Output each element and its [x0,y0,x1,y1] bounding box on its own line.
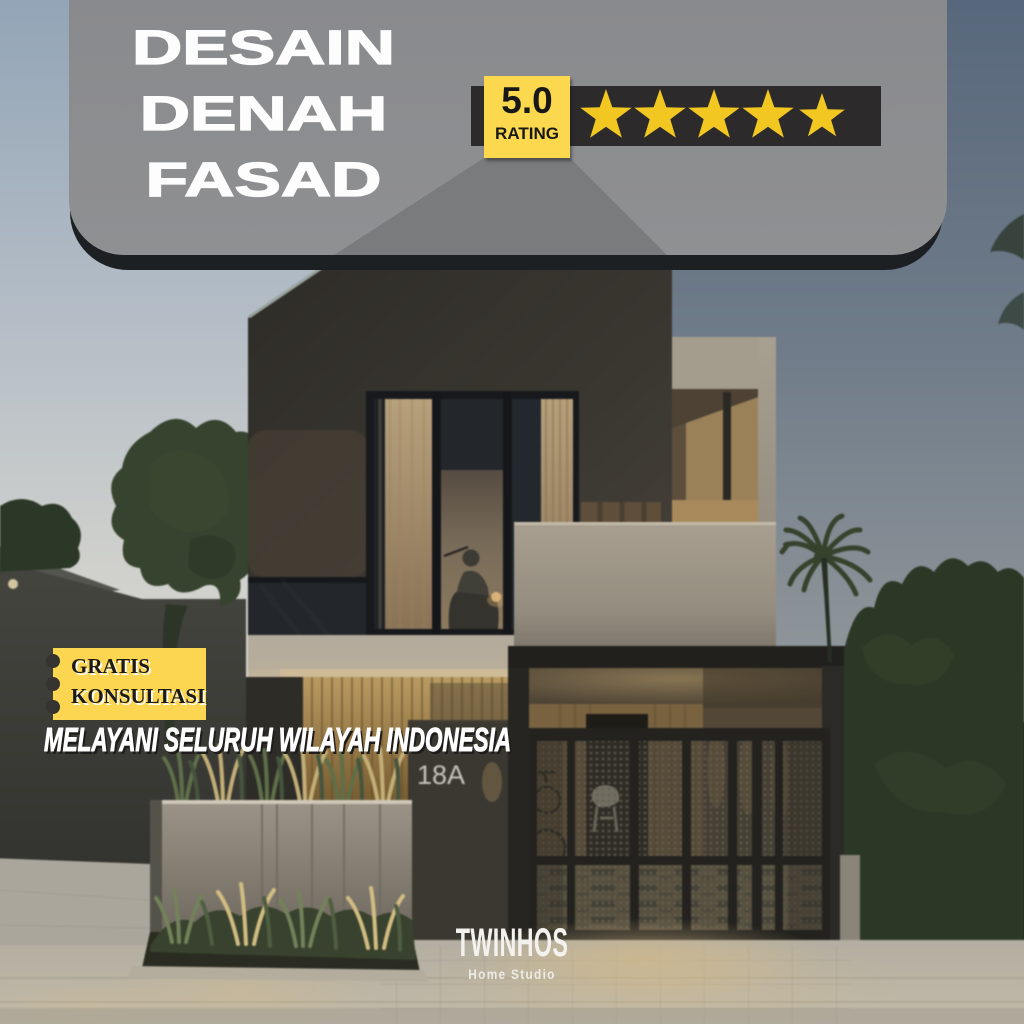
svg-text:18A: 18A [417,760,465,790]
